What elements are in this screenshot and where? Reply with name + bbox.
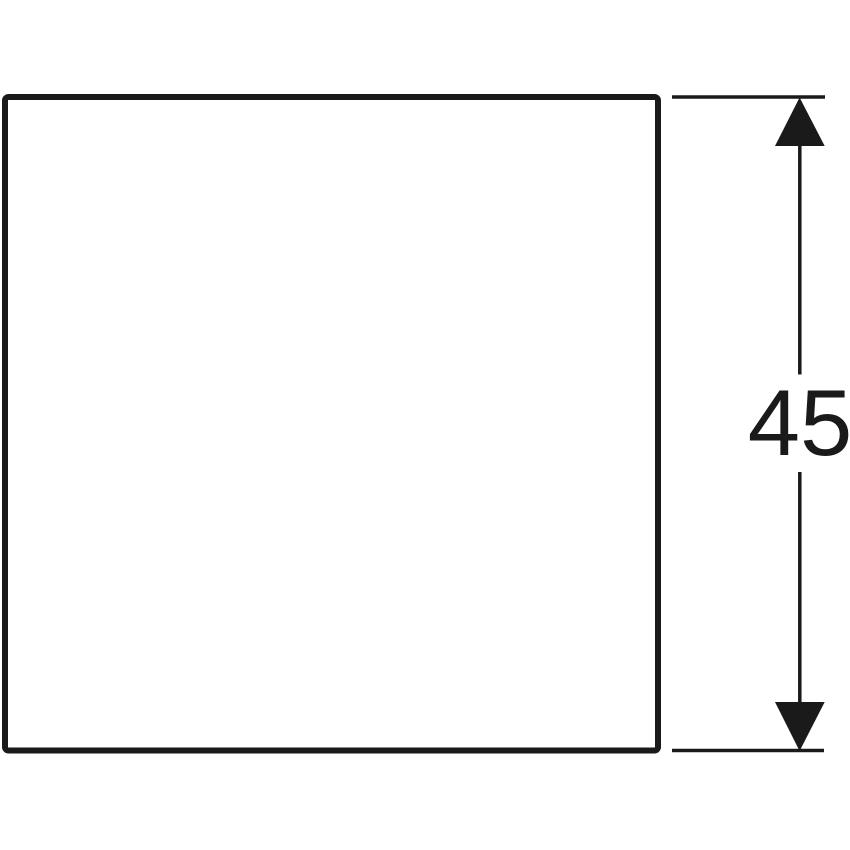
svg-text:45: 45 [748,370,850,475]
